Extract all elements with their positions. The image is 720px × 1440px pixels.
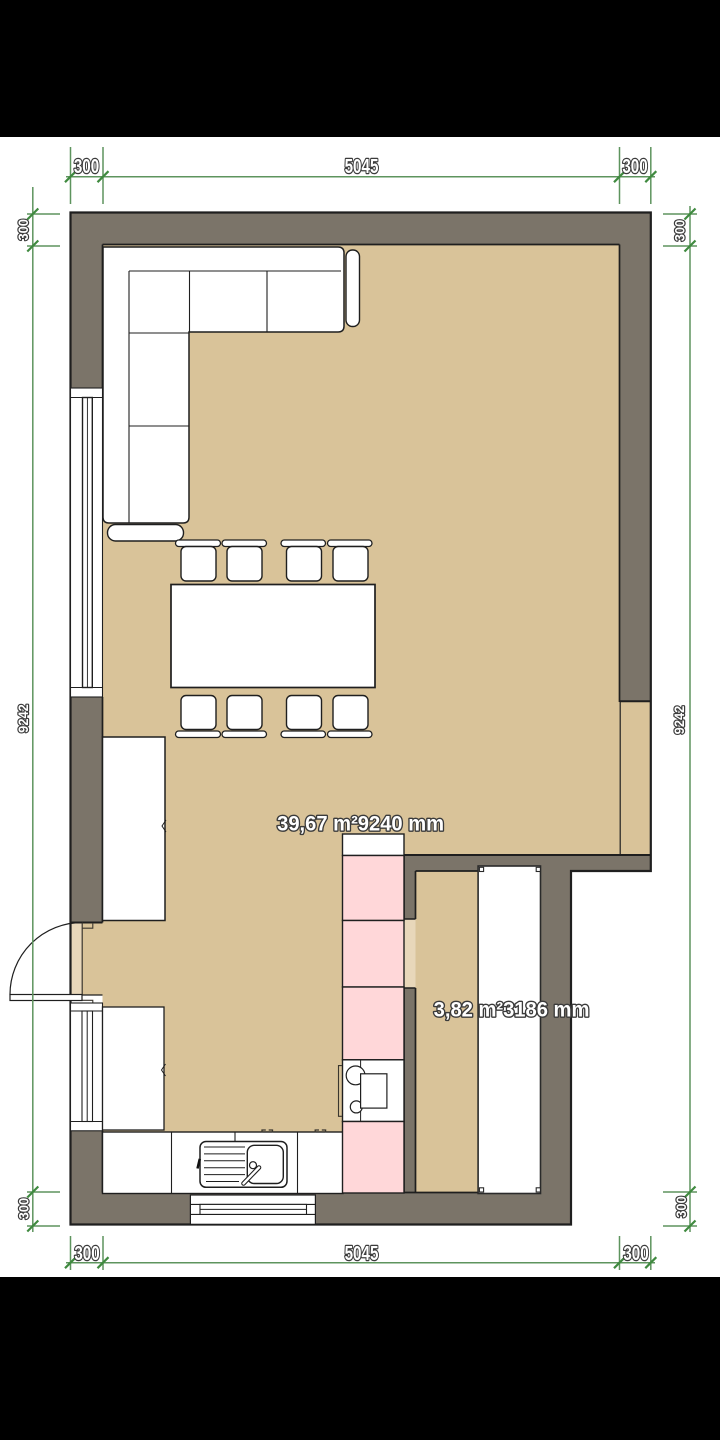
svg-text:300: 300 bbox=[623, 1242, 648, 1265]
svg-text:5045: 5045 bbox=[345, 1242, 379, 1265]
svg-text:3,82 m²3186 mm: 3,82 m²3186 mm bbox=[434, 998, 590, 1021]
svg-text:5045: 5045 bbox=[345, 155, 379, 178]
svg-text:300: 300 bbox=[622, 155, 647, 178]
svg-text:9242: 9242 bbox=[672, 706, 688, 735]
svg-text:300: 300 bbox=[16, 1198, 32, 1219]
svg-text:39,67 m²9240 mm: 39,67 m²9240 mm bbox=[277, 812, 444, 835]
svg-text:300: 300 bbox=[672, 220, 688, 241]
svg-text:300: 300 bbox=[16, 219, 32, 240]
svg-text:300: 300 bbox=[74, 155, 99, 178]
svg-text:300: 300 bbox=[674, 1196, 690, 1217]
svg-text:9242: 9242 bbox=[16, 704, 32, 733]
svg-text:300: 300 bbox=[74, 1242, 99, 1265]
